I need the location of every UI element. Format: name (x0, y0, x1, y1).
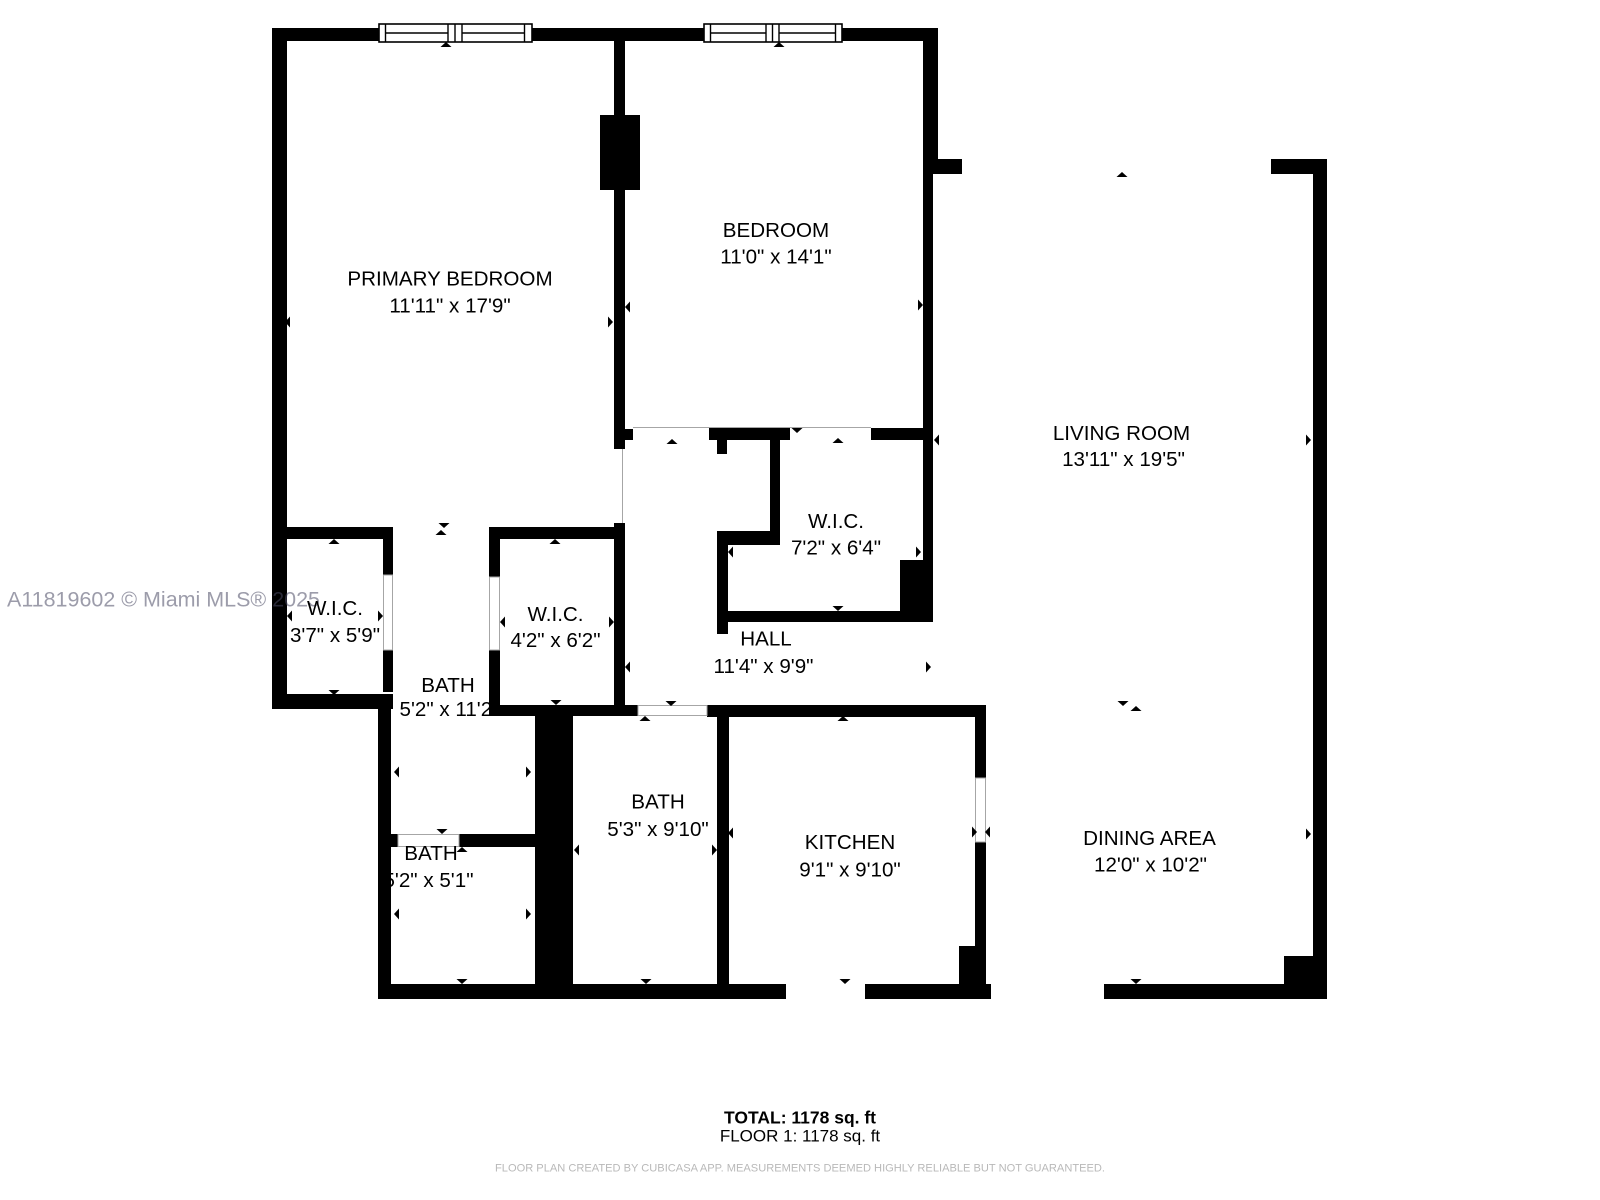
svg-text:5'3" x 9'10": 5'3" x 9'10" (607, 818, 709, 841)
svg-text:FLOOR PLAN CREATED BY CUBICASA: FLOOR PLAN CREATED BY CUBICASA APP. MEAS… (495, 1163, 1105, 1175)
svg-text:4'2" x 6'2": 4'2" x 6'2" (510, 629, 600, 652)
svg-text:3'7" x 5'9": 3'7" x 5'9" (290, 624, 380, 647)
svg-text:KITCHEN: KITCHEN (805, 831, 895, 854)
svg-text:5'2" x 11'2": 5'2" x 11'2" (400, 698, 500, 721)
svg-text:BATH: BATH (631, 791, 684, 814)
svg-text:DINING AREA: DINING AREA (1083, 827, 1216, 850)
svg-text:12'0" x 10'2": 12'0" x 10'2" (1094, 854, 1207, 877)
svg-text:W.I.C.: W.I.C. (527, 603, 583, 626)
svg-text:W.I.C.: W.I.C. (307, 597, 363, 620)
svg-text:13'11" x 19'5": 13'11" x 19'5" (1062, 448, 1185, 471)
svg-text:BEDROOM: BEDROOM (723, 219, 829, 242)
svg-text:11'4" x 9'9": 11'4" x 9'9" (714, 655, 814, 678)
svg-text:5'2" x 5'1": 5'2" x 5'1" (383, 869, 473, 892)
svg-text:A11819602 © Miami MLS® 2025: A11819602 © Miami MLS® 2025 (7, 588, 320, 612)
svg-text:HALL: HALL (740, 628, 792, 651)
svg-text:LIVING ROOM: LIVING ROOM (1053, 422, 1190, 445)
svg-text:11'11" x 17'9": 11'11" x 17'9" (389, 295, 510, 318)
svg-text:W.I.C.: W.I.C. (808, 510, 864, 533)
svg-text:9'1" x 9'10": 9'1" x 9'10" (799, 859, 901, 882)
svg-text:BATH: BATH (421, 674, 474, 697)
svg-text:7'2" x 6'4": 7'2" x 6'4" (791, 537, 881, 560)
svg-text:11'0" x 14'1": 11'0" x 14'1" (720, 246, 831, 269)
svg-text:TOTAL: 1178 sq. ft: TOTAL: 1178 sq. ft (724, 1108, 876, 1128)
svg-text:BATH: BATH (404, 842, 457, 865)
svg-text:FLOOR 1: 1178 sq. ft: FLOOR 1: 1178 sq. ft (720, 1127, 881, 1146)
svg-text:PRIMARY BEDROOM: PRIMARY BEDROOM (347, 268, 552, 291)
